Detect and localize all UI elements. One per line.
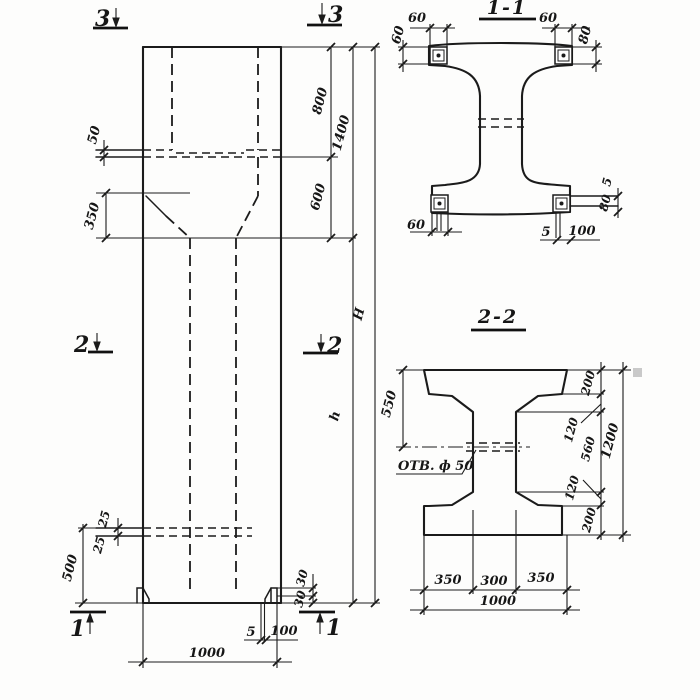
marker-2-left-label: 2 (73, 332, 89, 358)
dim-br-t: 5 (541, 225, 550, 240)
dim-width: 1000 (189, 646, 225, 661)
section-2-2-outline (424, 370, 567, 535)
marker-1-left-label: 1 (70, 616, 85, 642)
dim-flange-bot: 200 (579, 505, 599, 534)
dim-foot-a: 30 (293, 567, 311, 587)
dim-tie-a: 25 (95, 509, 113, 530)
dim-anchor-len: 100 (270, 624, 297, 639)
dim-flange-top: 200 (578, 368, 598, 397)
technical-drawing: 50 350 25 25 500 800 1400 600 H h 30 30 … (0, 0, 700, 700)
section-1-1-outline (429, 43, 572, 214)
scan-artifact (633, 368, 642, 377)
dim-lug-t: 5 (599, 176, 615, 188)
dim-taper-bot: 120 (562, 473, 582, 501)
dim-h: h (327, 410, 344, 423)
section-1-1: 1-1 60 60 60 80 60 5 (389, 0, 622, 244)
dim-web: 560 (578, 434, 598, 462)
anchor-legs (261, 603, 265, 640)
dim-600: 600 (308, 182, 330, 212)
dim-plate-tr: 60 (539, 11, 557, 26)
dim-plate-tl: 60 (408, 11, 426, 26)
dim-step: 50 (85, 124, 104, 145)
marker-3-right-label: 3 (328, 2, 343, 28)
hole-label: ОТВ. ф 50 (398, 459, 473, 474)
dim-plate-left: 60 (389, 24, 408, 45)
elevation-view: 50 350 25 25 500 800 1400 600 H h 30 30 … (60, 2, 380, 668)
dim-bot-right: 350 (527, 571, 554, 586)
dim-bot-left: 350 (434, 573, 461, 588)
drawing-sheet: 50 350 25 25 500 800 1400 600 H h 30 30 … (0, 0, 700, 700)
marker-1-right: 1 (299, 612, 341, 641)
dim-1400: 1400 (330, 114, 354, 153)
section-1-1-title: 1-1 (487, 0, 527, 19)
marker-2-right-label: 2 (326, 333, 342, 359)
elevation-outline (137, 47, 281, 640)
dim-800: 800 (310, 86, 332, 116)
section-2-2-title: 2-2 (477, 306, 518, 328)
dim-base: 500 (60, 553, 82, 583)
dim-top-to-hole: 550 (379, 389, 401, 419)
marker-1-right-label: 1 (326, 615, 341, 641)
dim-br-len: 100 (568, 224, 595, 239)
dim-tie-b: 25 (90, 535, 108, 556)
dim-taper: 350 (82, 201, 104, 231)
marker-1-left: 1 (70, 612, 106, 642)
marker-2-left: 2 (73, 332, 113, 358)
dim-plate-bl: 60 (407, 218, 425, 233)
section-1-1-hole (478, 119, 524, 127)
dim-bot-mid: 300 (480, 574, 507, 589)
marker-3-left: 3 (93, 6, 128, 32)
dim-anchor-w: 5 (246, 625, 255, 640)
section-2-2: 2-2 ОТВ. ф 50 550 200 120 560 120 200 12… (379, 306, 642, 615)
embedded-plates (430, 47, 618, 238)
section-2-2-dimensions: 550 200 120 560 120 200 1200 350 300 350… (379, 362, 631, 615)
dim-foot-b: 30 (291, 588, 309, 608)
marker-2-right: 2 (303, 333, 342, 359)
elevation-hidden-lines (143, 47, 281, 595)
dim-bot-total: 1000 (480, 594, 516, 609)
dim-total-1200: 1200 (599, 422, 623, 461)
dim-taper-top: 120 (561, 415, 581, 443)
marker-3-left-label: 3 (95, 6, 110, 32)
elevation-ledge-lines (96, 150, 143, 536)
hole-callout: ОТВ. ф 50 (396, 450, 476, 474)
dim-plate-right: 80 (576, 24, 595, 45)
section-markers: 3 3 2 2 1 (70, 2, 343, 642)
marker-3-right: 3 (307, 2, 343, 28)
